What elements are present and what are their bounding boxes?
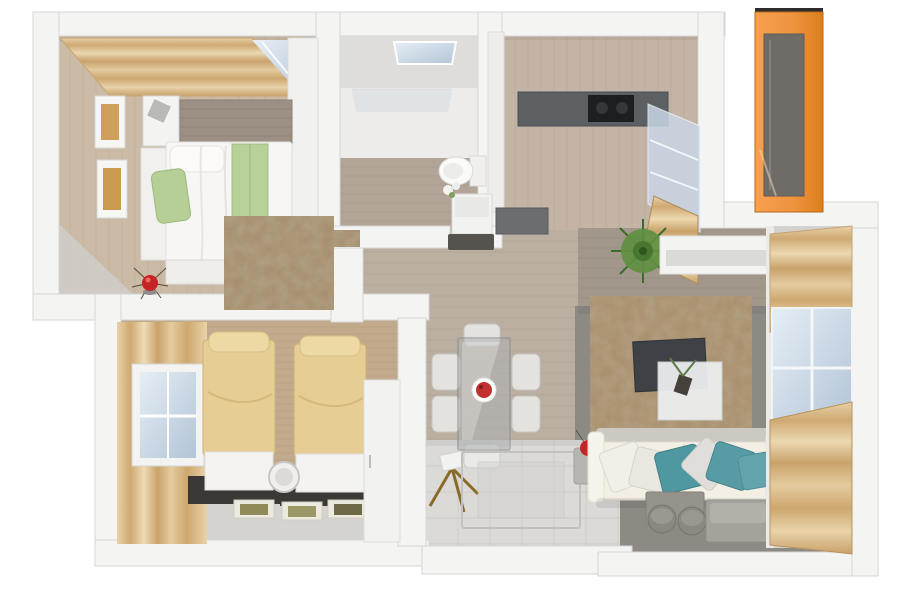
ottoman-large-cushion — [710, 503, 766, 523]
kitchen-cabinet-strip — [488, 32, 504, 212]
kids-mat-1-center — [240, 504, 268, 515]
wall-top — [33, 12, 725, 36]
burner-2 — [616, 102, 628, 114]
bedroom-rug-doorway — [318, 230, 360, 247]
wall-hall-bedroom — [331, 248, 363, 322]
wall-kitchen-right — [698, 12, 724, 228]
pouf-2-top — [681, 510, 703, 526]
kids-bed-1-foot — [205, 452, 273, 490]
headboard-shelf — [180, 100, 292, 144]
kids-mat-3-center — [334, 504, 362, 515]
bedroom-rug — [224, 216, 334, 310]
floorplan-canvas — [0, 0, 900, 600]
kids-bed-1-pillow — [209, 332, 269, 352]
window-curtain-bottom — [770, 402, 852, 554]
fruit-plate-food — [476, 382, 492, 398]
floorplan-image — [0, 0, 900, 600]
toilet-seat — [443, 163, 463, 179]
picture-frame-2-art — [103, 168, 121, 210]
wall-kids-right — [398, 318, 426, 546]
wall-right — [852, 202, 878, 576]
vanity-sink — [455, 197, 489, 217]
bathroom-skylight — [394, 42, 456, 64]
kids-clock-face — [275, 468, 293, 486]
coffee-table — [658, 362, 722, 420]
vanity-flowers-leaf — [449, 192, 455, 198]
dining-chair-left-1 — [432, 354, 460, 390]
shower-glass-pane — [352, 92, 452, 112]
red-plant-flower — [142, 275, 158, 291]
bathroom-doormat — [448, 234, 494, 250]
dining-chair-right-2 — [512, 396, 540, 432]
wall-bottom-living — [598, 552, 878, 576]
dining-chair-left-2 — [432, 396, 460, 432]
kids-bed-2-foot — [296, 454, 364, 492]
sofa-arm-left — [588, 432, 604, 502]
kids-bed-2-pillow — [300, 336, 360, 356]
red-plant-highlight — [146, 278, 151, 283]
pouf-1-top — [651, 508, 673, 524]
green-cushion — [151, 168, 192, 224]
bed-pillow — [170, 146, 224, 172]
kitchen-bench — [496, 208, 548, 234]
wall-bed-bath-divider — [316, 12, 340, 232]
burner-1 — [596, 102, 608, 114]
vanity-flowers-2 — [452, 182, 460, 190]
dining-chair-right-1 — [512, 354, 540, 390]
wall-left-upper — [33, 12, 59, 320]
picture-frame-1-art — [101, 104, 119, 140]
entry-rug-inner — [478, 462, 564, 518]
hall-plant-center — [639, 247, 647, 255]
kids-mat-2-center — [288, 506, 316, 517]
fruit-plate-dot — [479, 385, 483, 389]
